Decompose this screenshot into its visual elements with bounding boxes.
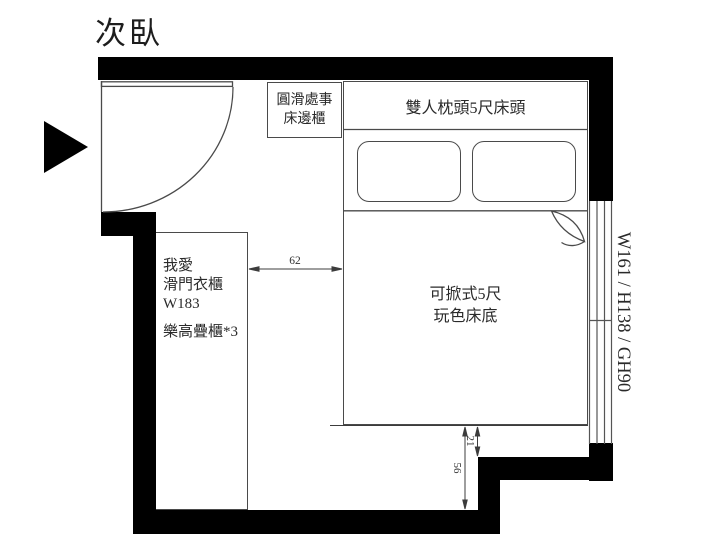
page-title: 次臥 (95, 8, 163, 53)
dimension-21-label: 21 (464, 426, 476, 456)
wardrobe-label-line4: 樂高疊櫃*3 (163, 323, 238, 342)
bed-base-label-line1: 可掀式5尺 (429, 284, 501, 306)
wardrobe-label-line2: 滑門衣櫃 (163, 276, 238, 295)
blanket-fold (552, 211, 585, 246)
wardrobe-label-line3: W183 (163, 295, 238, 314)
dimension-62 (249, 267, 342, 271)
window-symbol (589, 201, 612, 444)
entrance-arrow-icon (44, 121, 88, 173)
bedside-cabinet-label-line2: 床邊櫃 (284, 110, 326, 129)
door-leaf (102, 82, 233, 87)
bed-base-label-line2: 玩色床底 (433, 306, 497, 328)
dimension-62-label: 62 (272, 254, 318, 267)
wardrobe-label-line1: 我愛 (163, 257, 238, 276)
headboard-label: 雙人枕頭5尺床頭 (343, 82, 588, 129)
bedside-cabinet-label: 圓滑處事 床邊櫃 (267, 82, 342, 138)
bed-base-label: 可掀式5尺 玩色床底 (343, 284, 588, 328)
door-symbol (102, 81, 234, 212)
wardrobe-label: 我愛 滑門衣櫃 W183 樂高疊櫃*3 (163, 257, 238, 342)
window-spec-label: W161 / H138 / GH90 (612, 212, 634, 412)
door-swing-arc (103, 87, 233, 212)
bedside-cabinet-label-line1: 圓滑處事 (277, 91, 333, 110)
floor-plan: 次臥 (0, 0, 724, 552)
bed-divider-lines (343, 130, 588, 211)
dimension-56-label: 56 (451, 453, 463, 483)
